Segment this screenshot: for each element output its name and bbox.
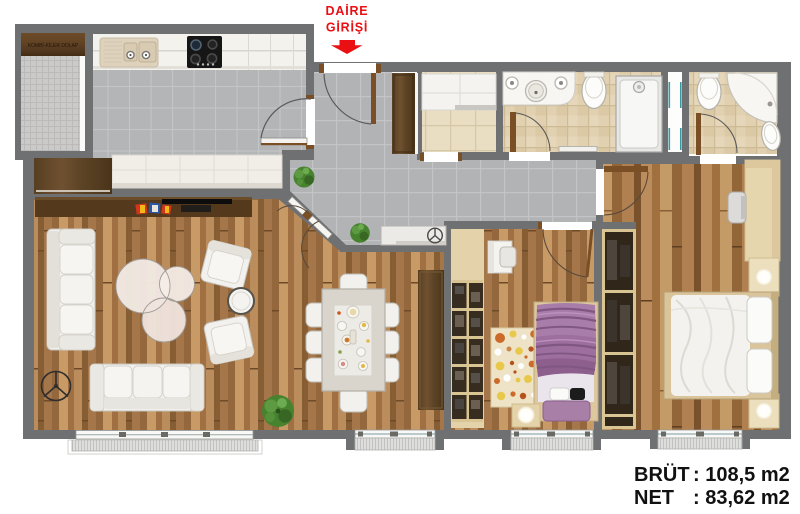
svg-text:NET: NET (634, 487, 674, 509)
svg-text:GİRİŞİ: GİRİŞİ (326, 20, 368, 35)
svg-text:: 83,62 m2: : 83,62 m2 (693, 487, 790, 509)
svg-text:DAİRE: DAİRE (326, 3, 369, 18)
svg-text:BRÜT: BRÜT (634, 463, 690, 486)
svg-text:KOMBİ-KİLER DOLAP: KOMBİ-KİLER DOLAP (28, 42, 79, 49)
svg-text:: 108,5 m2: : 108,5 m2 (693, 464, 790, 486)
